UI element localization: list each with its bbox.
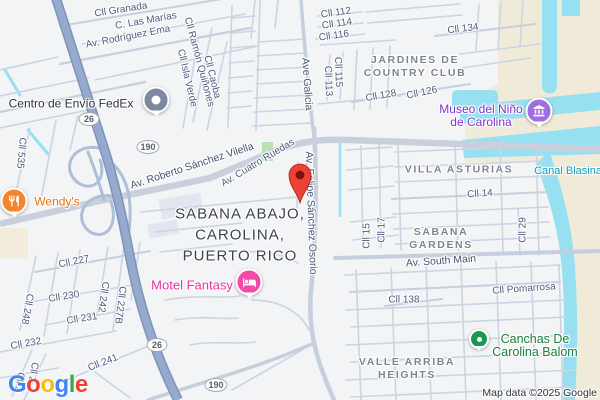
route-badge-190-south: 190 bbox=[204, 378, 227, 392]
restaurant-icon bbox=[8, 195, 21, 208]
destination-pin[interactable] bbox=[285, 160, 315, 204]
map-attribution: Map data ©2025 Google bbox=[482, 387, 597, 399]
motel-fantasy-poi-label[interactable]: Motel Fantasy bbox=[151, 279, 233, 292]
fedex-poi-pin[interactable] bbox=[143, 87, 170, 114]
museo-label-line2: de Carolina bbox=[450, 115, 511, 129]
canchas-poi-pin[interactable] bbox=[469, 329, 489, 349]
motel-fantasy-poi-pin[interactable] bbox=[236, 269, 263, 296]
poi-dot-icon bbox=[477, 337, 482, 342]
canchas-poi-label[interactable]: Canchas De Carolina Balom bbox=[492, 333, 577, 359]
bed-icon bbox=[242, 275, 256, 289]
canchas-label-line1: Canchas De bbox=[501, 332, 570, 346]
museo-poi-pin[interactable] bbox=[526, 98, 553, 125]
wendys-poi-label[interactable]: Wendy's bbox=[34, 196, 79, 209]
wendys-poi-pin[interactable] bbox=[1, 188, 28, 215]
map-canvas[interactable]: Cll Granada C. Las Marías Av. Rodríguez … bbox=[0, 0, 600, 400]
route-badge-26-south: 26 bbox=[147, 338, 168, 352]
museo-poi-label[interactable]: Museo del Niño de Carolina bbox=[439, 103, 522, 129]
poi-circle-icon bbox=[152, 96, 161, 105]
route-badge-26: 26 bbox=[79, 112, 100, 126]
canchas-label-line2: Carolina Balom bbox=[492, 345, 577, 359]
google-logo[interactable]: Google bbox=[8, 371, 88, 399]
fedex-poi-label[interactable]: Centro de Envío FedEx bbox=[9, 98, 134, 111]
museo-label-line1: Museo del Niño bbox=[439, 102, 522, 116]
route-badge-190: 190 bbox=[136, 140, 159, 154]
museum-icon bbox=[533, 105, 546, 118]
